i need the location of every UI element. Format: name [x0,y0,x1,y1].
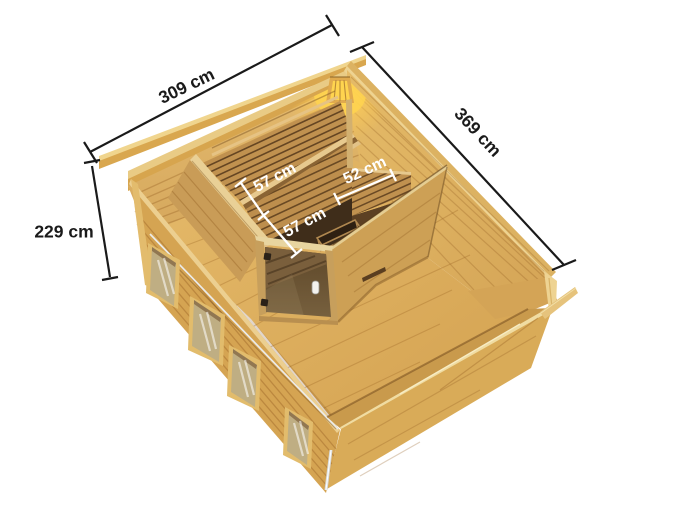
svg-text:229 cm: 229 cm [34,222,93,242]
